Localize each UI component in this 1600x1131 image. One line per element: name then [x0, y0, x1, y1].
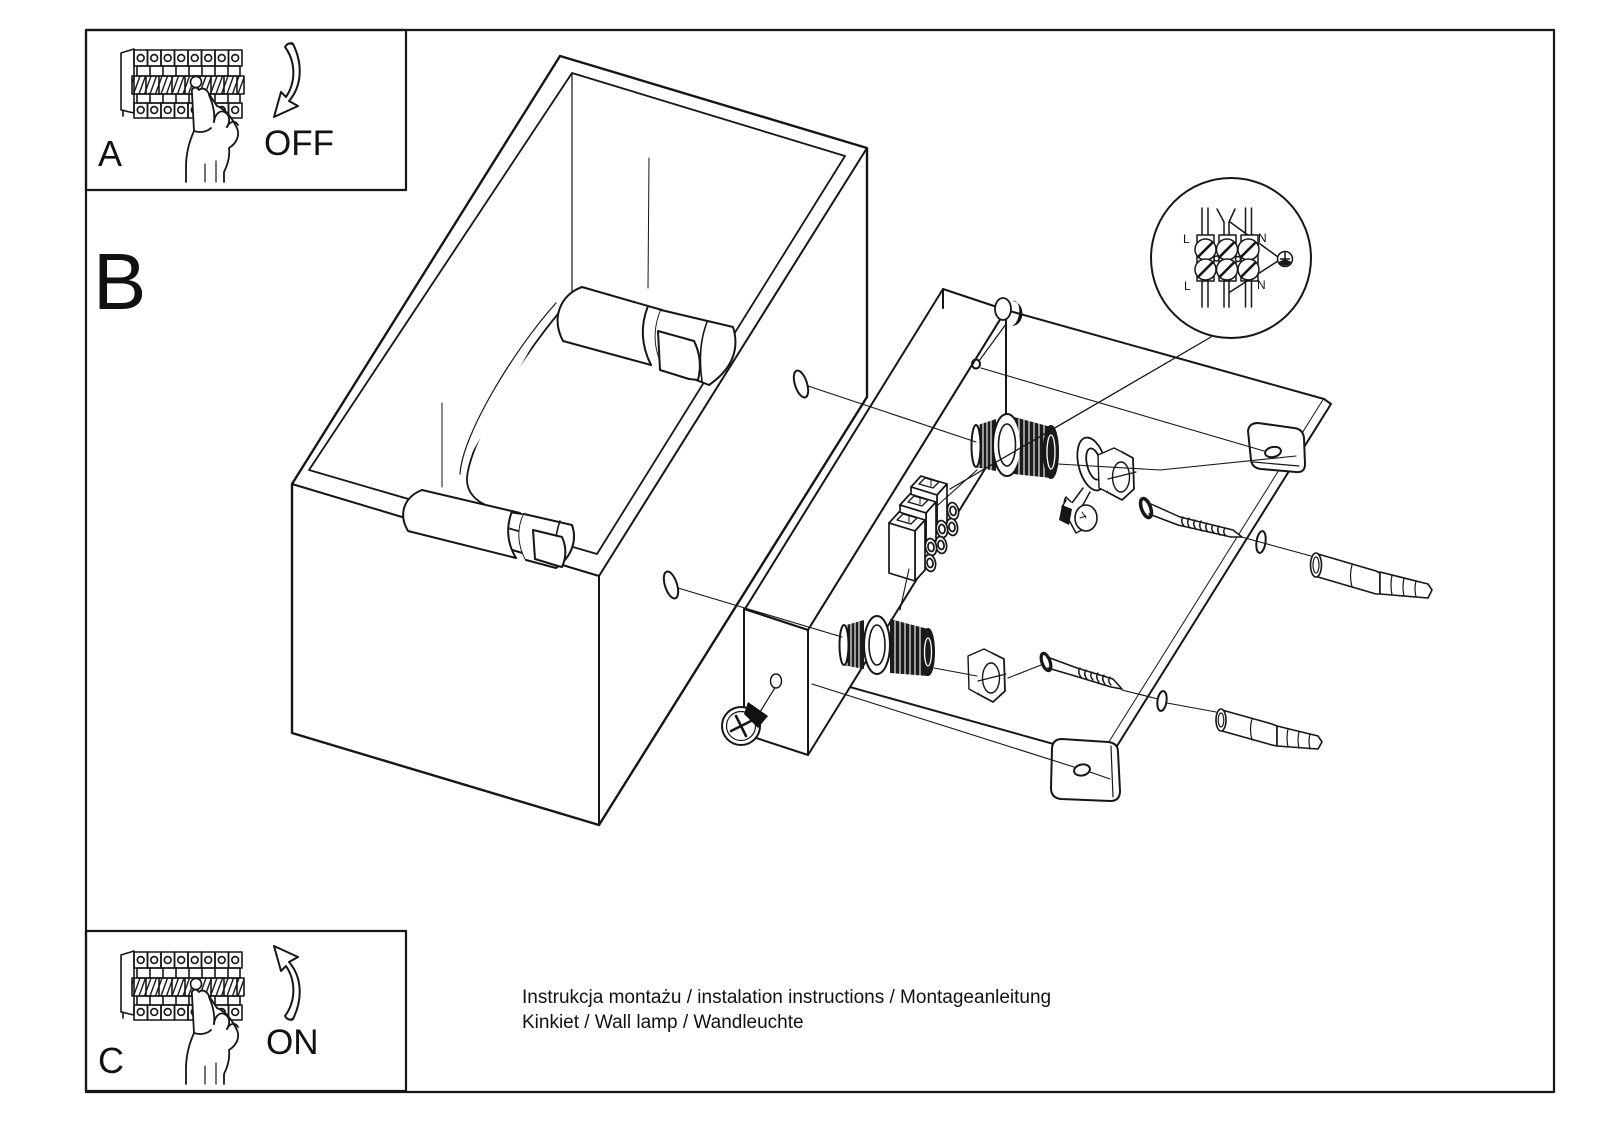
svg-text:A: A: [98, 133, 122, 174]
svg-text:L: L: [1184, 279, 1191, 293]
svg-text:Instrukcja montażu / instalati: Instrukcja montażu / instalation instruc…: [522, 987, 1051, 1008]
svg-text:N: N: [1257, 278, 1266, 292]
svg-text:L: L: [1183, 232, 1190, 246]
svg-text:C: C: [98, 1040, 124, 1081]
svg-text:N: N: [1258, 231, 1267, 245]
svg-text:B: B: [93, 237, 146, 326]
svg-text:ON: ON: [266, 1023, 319, 1062]
svg-text:OFF: OFF: [264, 124, 334, 163]
svg-text:Kinkiet / Wall lamp / Wandleuc: Kinkiet / Wall lamp / Wandleuchte: [522, 1012, 804, 1033]
